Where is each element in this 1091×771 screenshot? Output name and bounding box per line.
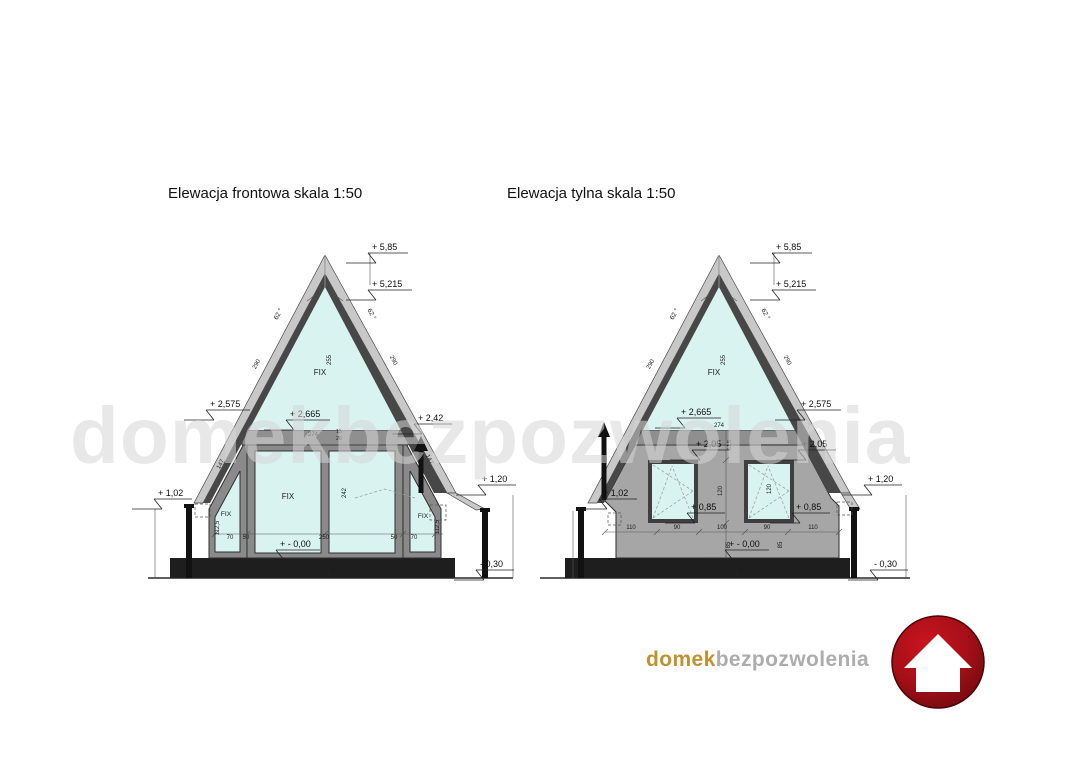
bottom-dim-5: 110	[808, 525, 818, 531]
bottom-dim-1: 110	[626, 525, 636, 531]
beam-dim-2: 26	[336, 436, 342, 442]
brand-logo-text: domekbezpozwolenia	[646, 648, 869, 672]
roof-angle-left: 62 °	[272, 307, 285, 321]
svg-text:+ 2,42: + 2,42	[418, 413, 443, 423]
beam-offset-dim: 61,5	[727, 440, 733, 450]
svg-text:+ 0,85: + 0,85	[796, 502, 821, 512]
brand-name-secondary: bezpozwolenia	[716, 648, 869, 671]
rear-elevation-drawing: 62 ° 62 ° 290 290 255 FIX 274 61,5 120 1…	[530, 225, 930, 615]
svg-text:- 0,30: - 0,30	[874, 559, 897, 569]
window-height-dim: 120	[718, 485, 724, 496]
brand-name-primary: domek	[646, 648, 716, 671]
rear-elevation-title: Elewacja tylna skala 1:50	[507, 185, 675, 202]
svg-text:+ 1,20: + 1,20	[868, 474, 893, 484]
beam	[242, 430, 408, 445]
level-marker-ridge: + 5,215	[750, 279, 816, 300]
svg-text:+ 2,05: + 2,05	[802, 439, 827, 449]
slope-dim: 290	[252, 358, 262, 370]
fix-label-side-right: FIX	[418, 513, 429, 520]
sill-height-dim: 85	[778, 541, 784, 548]
roof-angle-right: 62 °	[366, 307, 379, 321]
width-dim: 50	[243, 535, 250, 541]
svg-text:+ 1,02: + 1,02	[603, 488, 628, 498]
fix-label-side-left: FIX	[221, 511, 232, 518]
level-marker-eave-right: + 1,20	[842, 474, 902, 495]
slope-dim: 290	[646, 358, 656, 370]
svg-text:+ - 0,00: + - 0,00	[729, 539, 760, 549]
svg-text:+ 2,05: + 2,05	[696, 439, 721, 449]
beam-dim-1: 15	[336, 429, 342, 435]
width-dim: 70	[227, 535, 234, 541]
width-dim: 50	[391, 535, 398, 541]
svg-text:+ 5,85: + 5,85	[372, 242, 397, 252]
plinth	[565, 558, 850, 578]
side-window-height-dim: 112,5	[215, 520, 221, 535]
bottom-dim-3: 100	[717, 525, 728, 531]
slope-dim: 290	[388, 355, 398, 367]
level-marker-peak: + 5,85	[346, 242, 408, 263]
svg-text:+ 2,665: + 2,665	[290, 409, 320, 419]
svg-text:+ 2,575: + 2,575	[801, 399, 831, 409]
level-marker-ridge: + 5,215	[346, 279, 412, 300]
svg-text:+ 5,85: + 5,85	[776, 242, 801, 252]
door-width-dim: 250	[319, 535, 330, 541]
eave-detail-left	[195, 504, 210, 517]
level-marker-eave-left: + 1,02	[132, 488, 192, 509]
svg-text:+ 2,575: + 2,575	[210, 399, 240, 409]
slope-dim: 290	[782, 355, 792, 367]
plinth	[170, 558, 455, 578]
plinth-height-dim: 30	[739, 568, 745, 574]
width-dim: 70	[411, 535, 418, 541]
roof-angle-right: 62 °	[760, 307, 773, 321]
rear-window-left	[648, 460, 698, 523]
door-glass-sliding	[329, 451, 395, 553]
svg-text:+ 1,20: + 1,20	[482, 474, 507, 484]
svg-text:+ - 0,00: + - 0,00	[280, 539, 311, 549]
side-window-height-dim: 112,5	[435, 519, 441, 534]
gable-height-dim: 255	[721, 354, 727, 365]
svg-text:+ 5,215: + 5,215	[776, 279, 806, 289]
front-elevation-drawing: 62 ° 62 ° 290 290 147 147 255 FIX 274 15…	[130, 225, 530, 615]
bottom-dim-2: 90	[674, 525, 681, 531]
svg-text:+ 2,665: + 2,665	[681, 407, 711, 417]
door-height-dim: 242	[342, 487, 348, 498]
window-height-dim: 120	[767, 483, 773, 494]
bottom-dim-4: 90	[764, 525, 771, 531]
fix-label-gable: FIX	[314, 368, 327, 377]
beam-width-dim: 274	[714, 423, 725, 429]
downpipe-right	[849, 507, 859, 578]
door-glass-fixed	[255, 451, 321, 553]
drawing-sheet: Elewacja frontowa skala 1:50 Elewacja ty…	[0, 0, 1091, 771]
level-marker-peak: + 5,85	[750, 242, 812, 263]
gable-height-dim: 255	[327, 354, 333, 365]
roof-angle-left: 62 °	[668, 307, 681, 321]
beam-width-dim: 274	[308, 432, 319, 438]
front-elevation-title: Elewacja frontowa skala 1:50	[168, 185, 362, 202]
roof-foot-right	[447, 493, 485, 510]
svg-text:+ 0,85: + 0,85	[691, 502, 716, 512]
fix-label-door: FIX	[282, 492, 295, 501]
house-icon	[888, 612, 988, 712]
svg-text:- 0,30: - 0,30	[480, 559, 503, 569]
svg-text:+ 1,02: + 1,02	[158, 488, 183, 498]
plinth-height-dim: 30	[331, 568, 337, 574]
fix-label-gable: FIX	[708, 368, 721, 377]
svg-text:+ 5,215: + 5,215	[372, 279, 402, 289]
level-marker-eave-right: + 1,20	[456, 474, 516, 495]
